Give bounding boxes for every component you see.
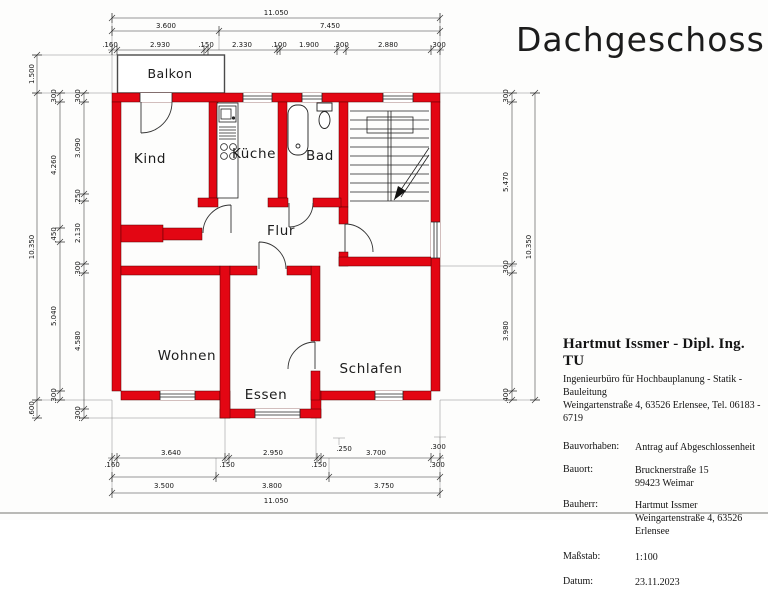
row-label: Bauort: <box>563 464 635 490</box>
dim-label: .300 <box>50 89 58 105</box>
dim-label: .150 <box>198 41 214 49</box>
dim-label: 3.800 <box>262 482 282 490</box>
plan-sheet: 11.050 3.600 7.450 .160 2.930 .150 2.330… <box>0 0 768 520</box>
title-block-row: Bauort: Brucknerstraße 15 99423 Weimar <box>563 464 765 490</box>
dim-label: 3.090 <box>74 138 82 158</box>
dim-label: 5.040 <box>50 306 58 326</box>
dim-label: .300 <box>429 461 445 469</box>
dim-label: .300 <box>502 89 510 105</box>
room-label-wohnen: Wohnen <box>158 348 216 364</box>
dim-label: 2.130 <box>74 223 82 243</box>
dim-label: 3.640 <box>161 449 181 457</box>
dim-label: .300 <box>74 89 82 105</box>
dim-label: .600 <box>28 401 36 417</box>
dim-label: 1.900 <box>299 41 319 49</box>
dim-label: 2.330 <box>232 41 252 49</box>
dimension-ticks <box>32 13 540 498</box>
dim-label: 2.880 <box>378 41 398 49</box>
bathtub <box>288 105 308 155</box>
dim-label: .400 <box>502 388 510 404</box>
dim-label: 11.050 <box>264 9 289 17</box>
dim-label: 5.470 <box>502 172 510 192</box>
dim-label: 3.980 <box>502 321 510 341</box>
dim-label: 2.930 <box>150 41 170 49</box>
dim-label: 3.500 <box>154 482 174 490</box>
room-label-bad: Bad <box>306 148 334 164</box>
row-value: Brucknerstraße 15 <box>635 464 765 477</box>
dim-label: .150 <box>219 461 235 469</box>
office-line1: Ingenieurbüro für Hochbauplanung - Stati… <box>563 373 765 399</box>
row-label: Maßstab: <box>563 551 635 564</box>
dim-label: 7.450 <box>320 22 340 30</box>
office-line2: Weingartenstraße 4, 63526 Erlensee, Tel.… <box>563 399 765 425</box>
dim-label: 3.600 <box>156 22 176 30</box>
dim-label: 4.580 <box>74 331 82 351</box>
dim-label: 4.260 <box>50 155 58 175</box>
room-label-essen: Essen <box>245 387 287 403</box>
dim-label: 2.950 <box>263 449 283 457</box>
dim-label: 3.700 <box>366 449 386 457</box>
dim-label: .250 <box>74 189 82 205</box>
room-label-balkon: Balkon <box>147 66 192 81</box>
stair-direction-arrow <box>394 186 406 200</box>
room-label-kueche: Küche <box>232 146 276 162</box>
room-label-schlafen: Schlafen <box>340 361 403 377</box>
dim-label: .300 <box>502 260 510 276</box>
row-value2: Weingartenstraße 4, 63526 Erlensee <box>635 512 765 538</box>
sheet-edge <box>0 512 768 514</box>
row-value: 23.11.2023 <box>635 576 765 589</box>
room-label-kind: Kind <box>134 151 166 167</box>
title-block-row: Maßstab: 1:100 <box>563 551 765 564</box>
dim-label: .300 <box>430 443 446 451</box>
dim-label: .160 <box>102 41 118 49</box>
title-block-row: Datum: 23.11.2023 <box>563 576 765 589</box>
row-value: 1:100 <box>635 551 765 564</box>
row-value2: 99423 Weimar <box>635 477 765 490</box>
dim-label: 10.350 <box>525 235 533 260</box>
dim-label: .300 <box>74 261 82 277</box>
title-block-row: Bauvorhaben: Antrag auf Abgeschlossenhei… <box>563 441 765 454</box>
dim-label: 3.750 <box>374 482 394 490</box>
staircase <box>350 111 429 201</box>
row-value: Hartmut Issmer <box>635 499 765 512</box>
row-value: Antrag auf Abgeschlossenheit <box>635 441 765 454</box>
dim-label: .160 <box>104 461 120 469</box>
dim-label: 10.350 <box>28 235 36 260</box>
room-label-flur: Flur <box>267 223 295 239</box>
dim-label: .150 <box>311 461 327 469</box>
dimension-lines <box>37 18 535 493</box>
row-label: Bauvorhaben: <box>563 441 635 454</box>
title-block-row: Bauherr: Hartmut Issmer Weingartenstraße… <box>563 499 765 538</box>
dim-label: .300 <box>333 41 349 49</box>
row-label: Bauherr: <box>563 499 635 538</box>
dim-label: .450 <box>50 227 58 243</box>
engineer-name: Hartmut Issmer - Dipl. Ing. TU <box>563 336 765 370</box>
dim-label: 1.500 <box>28 64 36 84</box>
row-label: Datum: <box>563 576 635 589</box>
dim-label: 11.050 <box>264 497 289 505</box>
dim-label: .300 <box>430 41 446 49</box>
drawing-title: Dachgeschoss <box>516 20 764 59</box>
extension-lines <box>32 13 540 493</box>
dim-label: .300 <box>74 406 82 422</box>
title-block: Hartmut Issmer - Dipl. Ing. TU Ingenieur… <box>563 336 765 589</box>
dim-label: .250 <box>336 445 352 453</box>
toilet <box>317 103 332 129</box>
dim-label: .300 <box>50 388 58 404</box>
dim-label: .100 <box>271 41 287 49</box>
